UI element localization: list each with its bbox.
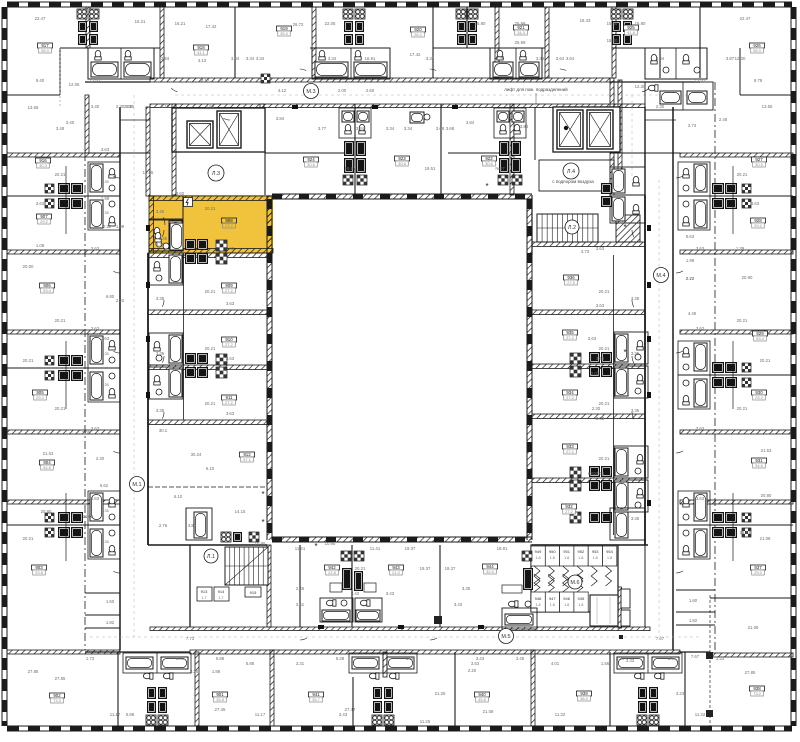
svg-text:7.67: 7.67 [691,654,700,659]
svg-text:3.63: 3.63 [751,201,760,206]
svg-text:М.1: М.1 [132,482,141,488]
svg-text:27.2: 27.2 [225,288,234,293]
svg-text:14.15: 14.15 [235,509,246,514]
svg-text:5.08: 5.08 [176,656,185,661]
svg-text:Л.3: Л.3 [212,171,220,177]
svg-text:3.43: 3.43 [476,656,485,661]
svg-text:22.47: 22.47 [740,16,751,21]
svg-text:53.4: 53.4 [756,336,765,341]
svg-text:3.63: 3.63 [588,336,597,341]
svg-text:30.6: 30.6 [307,162,316,167]
svg-text:11.17: 11.17 [110,712,121,717]
svg-text:1.7: 1.7 [219,596,224,600]
svg-text:1.39: 1.39 [736,246,745,251]
svg-text:4.01: 4.01 [551,661,560,666]
svg-text:949: 949 [535,549,542,554]
svg-text:25.99: 25.99 [515,21,526,26]
svg-text:20.21: 20.21 [55,406,66,411]
svg-text:12.05: 12.05 [143,170,154,175]
svg-text:27.2: 27.2 [225,400,234,405]
svg-text:2.22: 2.22 [116,298,125,303]
svg-text:22.05: 22.05 [325,21,336,26]
svg-text:27.2: 27.2 [566,449,575,454]
svg-text:30.24: 30.24 [191,452,202,457]
svg-text:30.1: 30.1 [159,428,168,433]
svg-text:27.5: 27.5 [567,280,576,285]
svg-text:54.6: 54.6 [755,463,764,468]
svg-text:2.30: 2.30 [124,104,133,109]
svg-text:17.42: 17.42 [410,52,421,57]
svg-text:3.30: 3.30 [616,656,625,661]
svg-text:1.58: 1.58 [206,104,215,109]
svg-text:21.08: 21.08 [748,625,759,630]
svg-text:лифт для пож. подразделений: лифт для пож. подразделений [504,86,568,92]
svg-text:3.80: 3.80 [188,523,197,528]
svg-text:3.84: 3.84 [520,124,529,129]
svg-text:1.99: 1.99 [116,224,125,229]
svg-text:3.63: 3.63 [91,426,100,431]
svg-text:1.8: 1.8 [536,556,541,560]
svg-text:4.13: 4.13 [198,58,207,63]
svg-text:10.95: 10.95 [255,541,266,546]
svg-text:3.35: 3.35 [156,351,165,356]
svg-text:2.22: 2.22 [686,276,695,281]
svg-text:4.12: 4.12 [201,78,210,83]
svg-text:16.21: 16.21 [135,19,146,24]
svg-text:5.88: 5.88 [216,656,225,661]
svg-text:3.84: 3.84 [466,120,475,125]
svg-text:3.34: 3.34 [356,126,365,131]
svg-text:3.33: 3.33 [716,656,725,661]
svg-text:1.8: 1.8 [564,556,569,560]
svg-text:57.1: 57.1 [243,457,252,462]
svg-text:*: * [261,490,264,499]
svg-text:36.0: 36.0 [580,696,589,701]
svg-text:1.60: 1.60 [689,598,698,603]
svg-text:22.47: 22.47 [35,16,46,21]
svg-text:55.0: 55.0 [41,48,50,53]
svg-text:1.99: 1.99 [686,258,695,263]
svg-text:27.2: 27.2 [225,342,234,347]
svg-text:20.21: 20.21 [599,289,610,294]
svg-text:3.64: 3.64 [556,56,565,61]
svg-text:*: * [261,518,264,527]
svg-text:21.53: 21.53 [740,530,751,535]
svg-text:21.08: 21.08 [760,536,771,541]
svg-text:3.63: 3.63 [696,426,705,431]
svg-text:20.21: 20.21 [55,172,66,177]
svg-text:25.99: 25.99 [515,40,526,45]
svg-text:№87: №87 [495,166,505,171]
svg-text:13.55: 13.55 [762,104,773,109]
svg-text:3.31: 3.31 [296,661,305,666]
svg-text:6.62: 6.62 [100,483,109,488]
svg-text:3.63: 3.63 [226,411,235,416]
svg-text:3.34: 3.34 [246,56,255,61]
svg-text:2.60: 2.60 [366,88,375,93]
svg-text:54.6: 54.6 [43,465,52,470]
svg-text:32.0: 32.0 [486,569,495,574]
svg-text:15.80: 15.80 [635,21,646,26]
svg-text:3.45: 3.45 [516,656,525,661]
svg-text:1.8: 1.8 [536,603,541,607]
svg-text:18.43: 18.43 [580,18,591,23]
svg-text:13.03: 13.03 [90,78,101,83]
svg-text:45.8: 45.8 [478,697,487,702]
svg-text:7.73: 7.73 [186,636,195,641]
svg-text:3.63: 3.63 [91,326,100,331]
svg-text:20.21: 20.21 [599,346,610,351]
svg-text:954: 954 [606,549,613,554]
svg-text:5.15: 5.15 [161,104,170,109]
svg-text:29.2: 29.2 [36,395,45,400]
svg-text:*: * [485,182,488,191]
svg-text:945: 945 [578,596,585,601]
svg-text:915: 915 [250,590,257,595]
svg-text:2.05: 2.05 [82,430,91,435]
svg-text:1.86: 1.86 [406,656,415,661]
svg-text:Л.4: Л.4 [567,169,575,175]
svg-text:73.2: 73.2 [753,691,762,696]
svg-text:34.3: 34.3 [517,30,526,35]
svg-text:1.8: 1.8 [607,556,612,560]
svg-text:3.63: 3.63 [91,246,100,251]
svg-text:30.5: 30.5 [755,162,764,167]
svg-text:19.37: 19.37 [405,546,416,551]
svg-text:3.57: 3.57 [668,656,677,661]
svg-text:15.80: 15.80 [475,21,486,26]
svg-text:3.28: 3.28 [190,669,199,674]
svg-text:3.40: 3.40 [91,104,100,109]
svg-text:1.82: 1.82 [106,620,115,625]
svg-text:3.35: 3.35 [156,408,165,413]
svg-text:16.21: 16.21 [175,21,186,26]
svg-text:9.79: 9.79 [754,78,763,83]
svg-text:20.21: 20.21 [737,172,748,177]
svg-text:913: 913 [201,589,208,594]
svg-text:5.63: 5.63 [686,234,695,239]
svg-text:21.53: 21.53 [761,448,772,453]
svg-text:5.88: 5.88 [246,661,255,666]
svg-text:3.63: 3.63 [101,336,110,341]
svg-text:3.43: 3.43 [351,591,360,596]
svg-text:2.03: 2.03 [591,371,600,376]
svg-text:29.2: 29.2 [754,223,763,228]
svg-text:3.51: 3.51 [296,602,305,607]
svg-text:3.63: 3.63 [226,246,235,251]
svg-text:35.8: 35.8 [216,697,225,702]
svg-text:28.2: 28.2 [414,32,423,37]
svg-text:1.82: 1.82 [689,618,698,623]
svg-text:29.8: 29.8 [35,570,44,575]
svg-text:3.68: 3.68 [446,126,455,131]
svg-text:41.8: 41.8 [627,30,636,35]
svg-text:27.2: 27.2 [566,395,575,400]
svg-text:3.94: 3.94 [161,56,170,61]
svg-text:6.10: 6.10 [174,494,183,499]
svg-text:2.20: 2.20 [468,668,477,673]
svg-text:3.63: 3.63 [596,303,605,308]
svg-text:19.37: 19.37 [420,566,431,571]
svg-text:2.46: 2.46 [296,586,305,591]
svg-text:20.21: 20.21 [205,206,216,211]
svg-text:21.0: 21.0 [392,570,401,575]
svg-text:27.85: 27.85 [745,670,756,675]
svg-text:30.3: 30.3 [39,163,48,168]
svg-text:20.21: 20.21 [355,566,366,571]
svg-text:3.94: 3.94 [231,56,240,61]
svg-text:19.37: 19.37 [445,566,456,571]
svg-text:20.21: 20.21 [205,346,216,351]
svg-text:21.25: 21.25 [435,691,446,696]
svg-text:5.88: 5.88 [126,712,135,717]
svg-text:20.21: 20.21 [737,406,748,411]
svg-text:17.42: 17.42 [206,24,217,29]
svg-text:3.63: 3.63 [696,326,705,331]
svg-text:3.34: 3.34 [328,56,337,61]
svg-text:20.21: 20.21 [205,289,216,294]
svg-text:*: * [623,348,626,357]
svg-text:1.8: 1.8 [550,603,555,607]
svg-text:3.34: 3.34 [426,56,435,61]
svg-text:11.32: 11.32 [555,712,566,717]
svg-text:20.21: 20.21 [737,318,748,323]
svg-text:20.00: 20.00 [23,264,34,269]
svg-text:1.8: 1.8 [578,556,583,560]
svg-text:3.35: 3.35 [462,586,471,591]
svg-text:2.22: 2.22 [103,224,112,229]
svg-text:3.77: 3.77 [318,126,327,131]
svg-text:3.43: 3.43 [454,602,463,607]
svg-text:3.84: 3.84 [276,116,285,121]
svg-text:6.80: 6.80 [106,294,115,299]
svg-text:10.95: 10.95 [325,541,336,546]
svg-text:3.39: 3.39 [536,56,545,61]
svg-text:1.08: 1.08 [36,243,45,248]
svg-text:29.2: 29.2 [40,219,49,224]
svg-text:1.8: 1.8 [564,603,569,607]
svg-text:948: 948 [535,596,542,601]
svg-text:М.3: М.3 [306,89,315,95]
svg-text:3.73: 3.73 [688,123,697,128]
svg-text:3.64: 3.64 [566,56,575,61]
svg-text:19.67: 19.67 [345,166,356,171]
svg-text:35.5: 35.5 [280,31,289,36]
svg-text:3.63: 3.63 [596,356,605,361]
svg-text:20.21: 20.21 [760,358,771,363]
svg-text:27.2: 27.2 [225,223,234,228]
svg-text:3.35: 3.35 [156,296,165,301]
svg-text:12.30: 12.30 [735,56,746,61]
svg-text:27.2: 27.2 [566,335,575,340]
svg-text:15.80: 15.80 [607,21,618,26]
svg-text:М.6: М.6 [570,580,579,586]
svg-text:13.55: 13.55 [28,105,39,110]
svg-text:2.76: 2.76 [159,523,168,528]
svg-text:11.25: 11.25 [420,719,431,724]
svg-text:27.85: 27.85 [28,669,39,674]
svg-text:20.80: 20.80 [761,493,772,498]
svg-text:946: 946 [563,596,570,601]
svg-text:1.7: 1.7 [202,596,207,600]
svg-text:3.63: 3.63 [101,147,110,152]
svg-text:20.21: 20.21 [55,318,66,323]
svg-text:3.60: 3.60 [176,191,185,196]
svg-text:35.7: 35.7 [312,697,321,702]
svg-text:3.35: 3.35 [631,351,640,356]
svg-text:1.8: 1.8 [578,603,583,607]
svg-text:2.00: 2.00 [338,88,347,93]
svg-text:3.63: 3.63 [596,416,605,421]
svg-text:3.48: 3.48 [56,126,65,131]
svg-text:11.41: 11.41 [295,546,306,551]
svg-text:30.6: 30.6 [398,161,407,166]
svg-text:19.51: 19.51 [425,166,436,171]
svg-text:29.0: 29.0 [754,570,763,575]
svg-text:М.4: М.4 [656,273,665,279]
svg-text:3.40: 3.40 [156,209,165,214]
svg-text:3.40: 3.40 [66,120,75,125]
svg-text:2.30: 2.30 [656,104,665,109]
svg-text:914: 914 [218,589,225,594]
svg-text:*: * [314,542,317,551]
svg-text:30.6: 30.6 [485,161,494,166]
svg-text:73.3: 73.3 [53,698,62,703]
svg-text:950: 950 [549,549,556,554]
svg-text:11.41: 11.41 [370,546,381,551]
svg-text:21.08: 21.08 [83,514,94,519]
svg-text:20.21: 20.21 [599,401,610,406]
svg-text:20.21: 20.21 [205,401,216,406]
svg-text:1.8: 1.8 [550,556,555,560]
svg-text:3.34: 3.34 [256,56,265,61]
svg-text:11.17: 11.17 [255,712,266,717]
svg-text:3.63: 3.63 [91,496,100,501]
svg-text:3.63: 3.63 [226,301,235,306]
svg-text:М.5: М.5 [501,634,510,640]
svg-text:21.53: 21.53 [43,451,54,456]
svg-text:3.63: 3.63 [596,246,605,251]
svg-text:20.21: 20.21 [23,358,34,363]
svg-text:951: 951 [563,549,570,554]
svg-text:3.63: 3.63 [226,356,235,361]
svg-text:3.68: 3.68 [436,126,445,131]
svg-text:3.63: 3.63 [696,496,705,501]
svg-text:20.21: 20.21 [23,536,34,541]
svg-text:2.30: 2.30 [592,406,601,411]
svg-text:4.12: 4.12 [278,88,287,93]
svg-text:21.08: 21.08 [483,709,494,714]
svg-text:3.33: 3.33 [626,658,635,663]
svg-text:3.34: 3.34 [656,56,665,61]
svg-text:Л.1: Л.1 [207,554,215,560]
svg-text:1.99: 1.99 [101,196,110,201]
svg-text:16.91: 16.91 [365,56,376,61]
svg-text:12.05: 12.05 [69,82,80,87]
svg-text:5.28: 5.28 [336,656,345,661]
svg-text:3.34: 3.34 [404,126,413,131]
svg-text:3.73: 3.73 [581,249,590,254]
svg-text:3.23: 3.23 [676,691,685,696]
svg-text:6.10: 6.10 [206,466,215,471]
svg-text:Л.2: Л.2 [568,225,576,231]
svg-text:3.39: 3.39 [496,56,505,61]
svg-text:27.2: 27.2 [565,509,574,514]
svg-text:3.53: 3.53 [471,661,480,666]
svg-text:3.35: 3.35 [156,242,165,247]
svg-text:27.85: 27.85 [55,676,66,681]
svg-text:12.30: 12.30 [635,84,646,89]
svg-text:3.63: 3.63 [596,471,605,476]
svg-text:20.21: 20.21 [599,456,610,461]
svg-text:947: 947 [549,596,556,601]
svg-text:20.80: 20.80 [41,509,52,514]
svg-text:26.72: 26.72 [293,22,304,27]
svg-text:3.34: 3.34 [386,126,395,131]
svg-text:*: * [623,223,626,232]
svg-text:41.1: 41.1 [197,50,206,55]
svg-text:11.32: 11.32 [695,712,706,717]
svg-text:с подпором воздуха: с подпором воздуха [552,179,594,184]
svg-text:2.30: 2.30 [96,456,105,461]
svg-text:15.80: 15.80 [607,38,618,43]
svg-text:20.90: 20.90 [742,275,753,280]
svg-text:53.4: 53.4 [43,288,52,293]
svg-text:953: 953 [592,549,599,554]
svg-text:1.56: 1.56 [601,661,610,666]
svg-text:7.67: 7.67 [656,636,665,641]
svg-text:29.2: 29.2 [755,395,764,400]
svg-text:1.88: 1.88 [212,669,221,674]
svg-text:1.73: 1.73 [86,656,95,661]
svg-text:3.35: 3.35 [631,516,640,521]
svg-text:1.60: 1.60 [106,599,115,604]
svg-text:18.81: 18.81 [497,546,508,551]
svg-text:3.43: 3.43 [386,591,395,596]
svg-text:22.8: 22.8 [328,570,337,575]
svg-text:952: 952 [578,549,585,554]
svg-text:27.45: 27.45 [215,707,226,712]
svg-text:3.63: 3.63 [696,246,705,251]
svg-text:2.48: 2.48 [719,117,728,122]
svg-text:1.8: 1.8 [593,556,598,560]
svg-text:3.63: 3.63 [36,201,45,206]
svg-text:3.43: 3.43 [339,712,348,717]
svg-text:55.0: 55.0 [753,48,762,53]
svg-text:13.03: 13.03 [695,78,706,83]
svg-text:4.49: 4.49 [688,311,697,316]
svg-text:9.40: 9.40 [36,78,45,83]
svg-text:3.35: 3.35 [159,236,168,241]
svg-text:3.87: 3.87 [726,56,735,61]
